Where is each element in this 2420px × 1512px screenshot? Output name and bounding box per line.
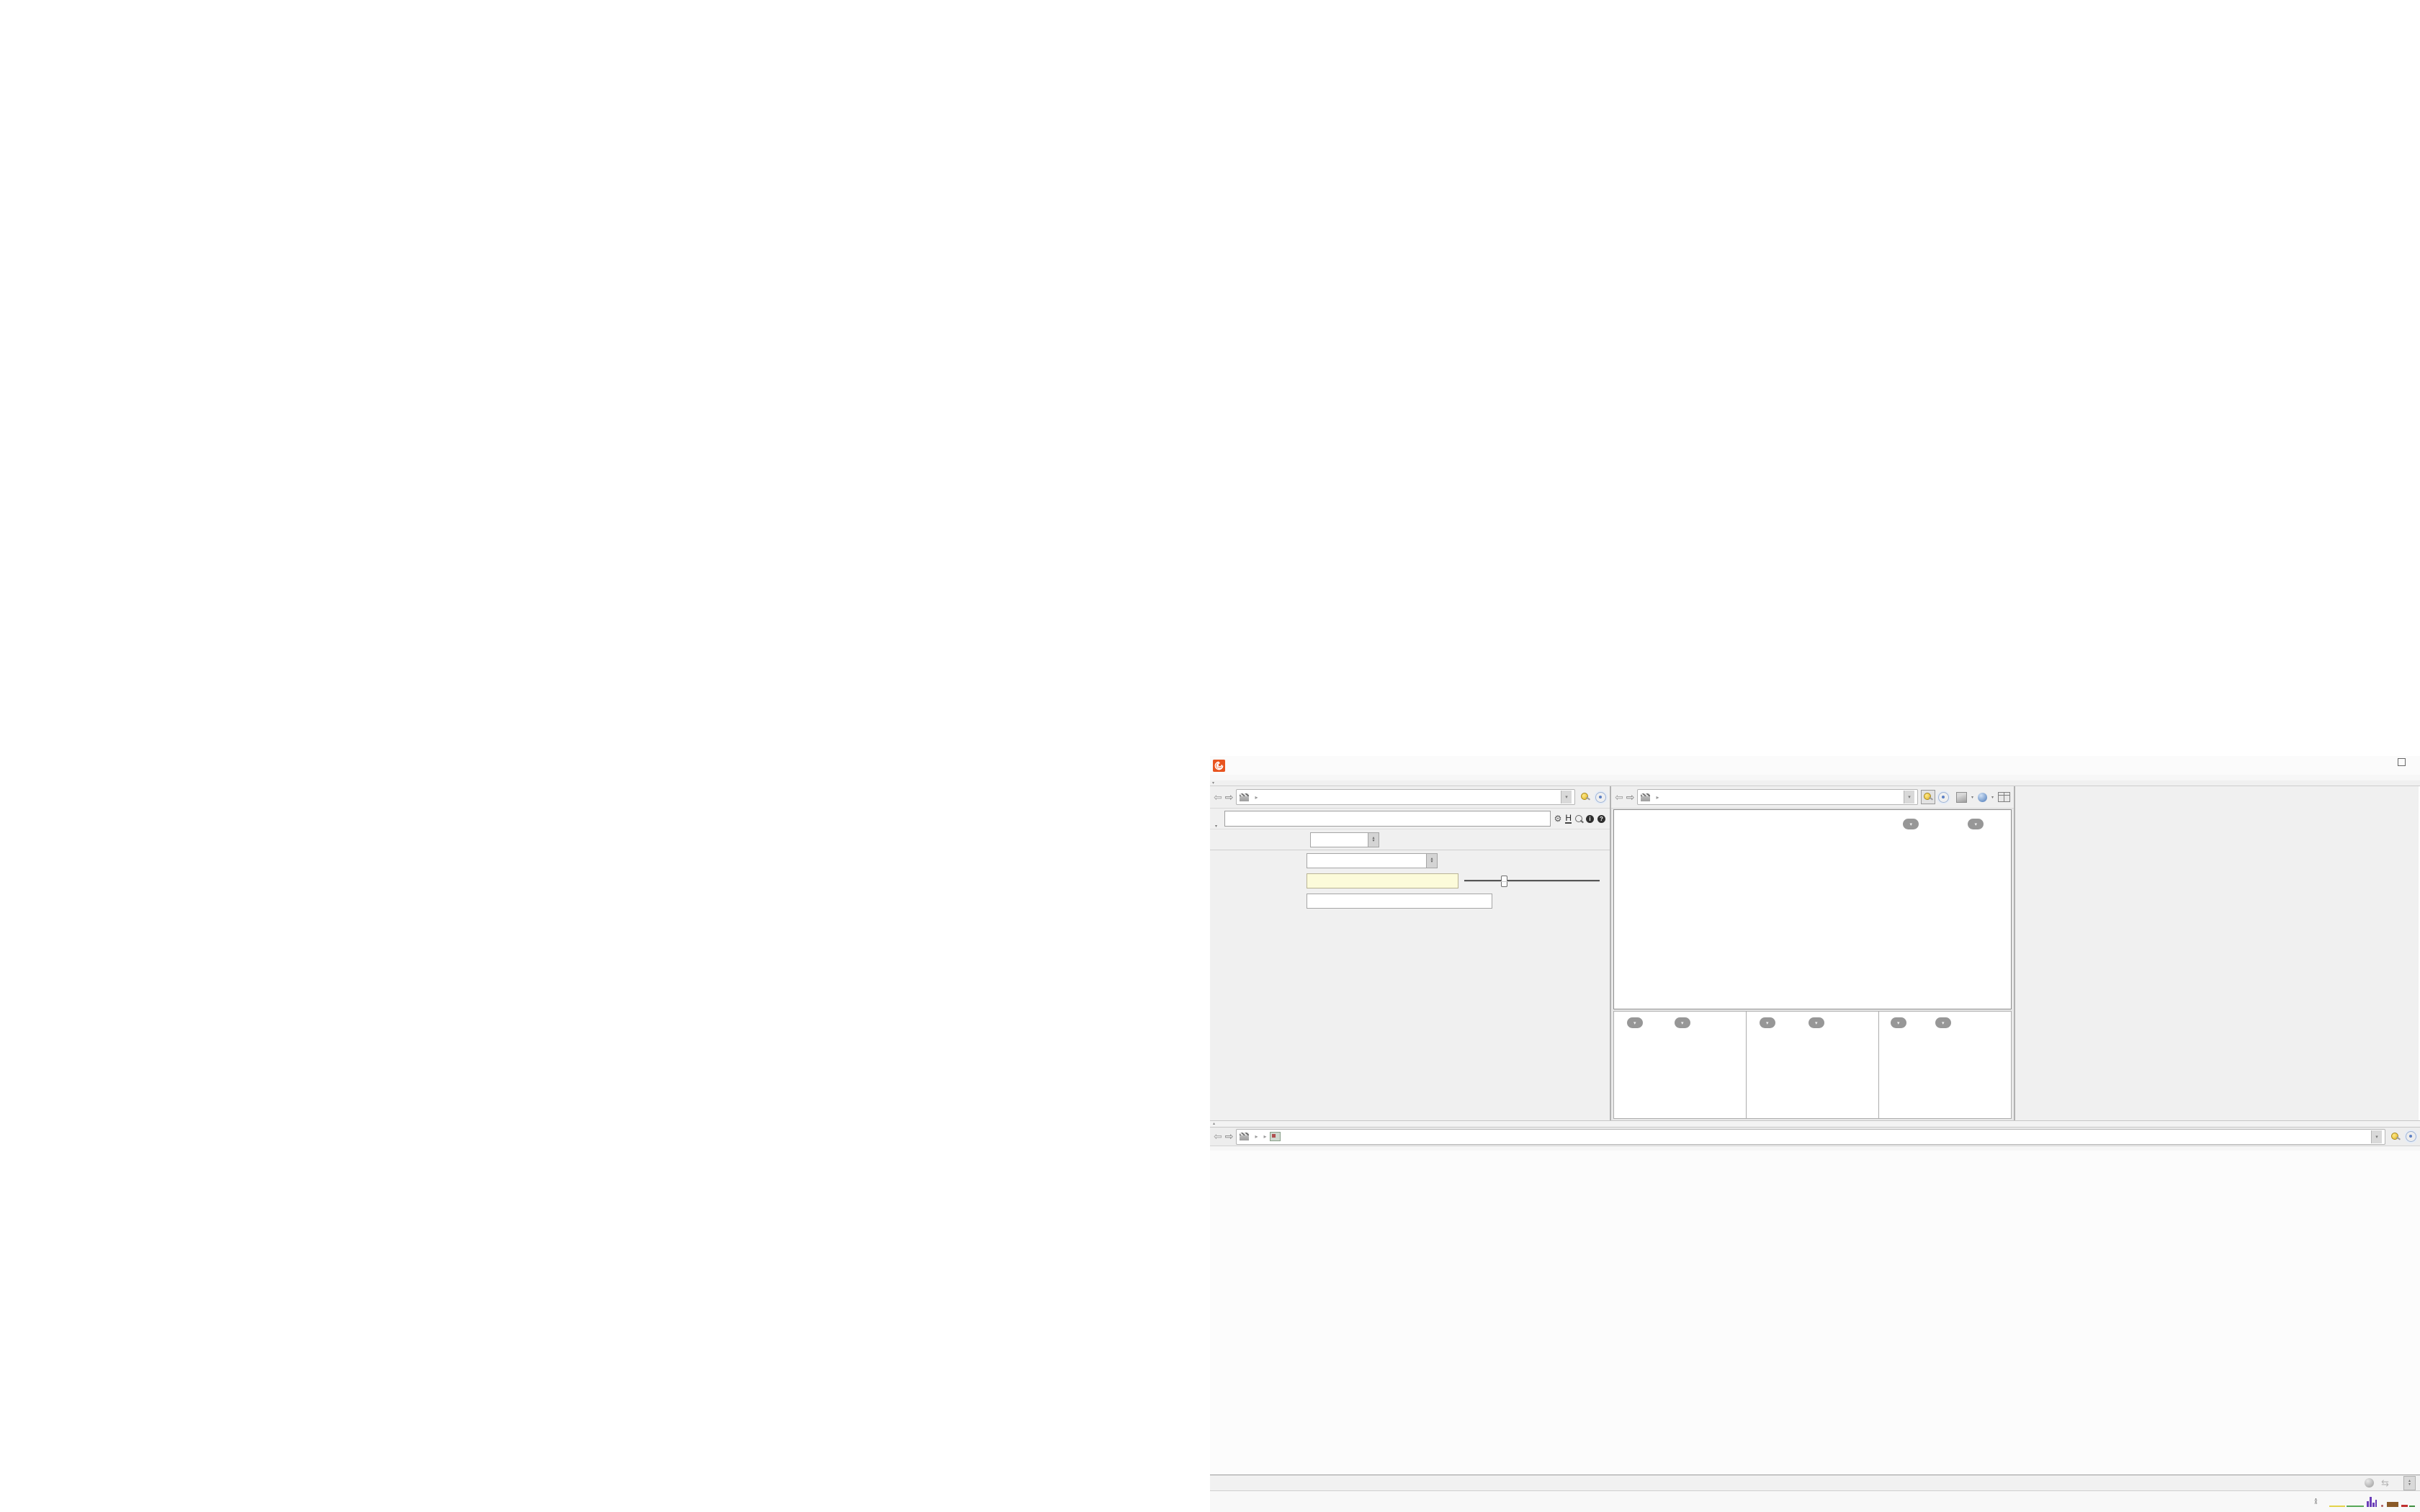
path-breadcrumb[interactable]: ▸ ▾ [1637, 789, 1918, 805]
highlight-button[interactable] [1921, 790, 1935, 804]
quad-viewports: ▾ ▾ ▾ ▾ ▾ ▾ [1613, 1011, 2012, 1119]
wireframe-mesh [1909, 1017, 1961, 1117]
forward-arrow-icon[interactable]: ⇨ [1225, 1130, 1234, 1143]
spinner-icon[interactable]: ▴▾ [1426, 854, 1437, 868]
back-arrow-icon[interactable]: ⇦ [1615, 791, 1623, 804]
help-icon[interactable]: ? [1597, 815, 1605, 823]
back-arrow-icon[interactable]: ⇦ [1214, 791, 1222, 804]
key-icon [1581, 793, 1588, 800]
quadview-toggle-icon[interactable] [1998, 792, 2010, 802]
houdini-logo-icon [1213, 760, 1225, 772]
key-icon [2391, 1133, 2398, 1140]
pin-pane-button[interactable] [1578, 790, 1592, 804]
screen: ▾ ⇦ ⇨ ▸ ▾ [0, 0, 2420, 1512]
houdini-help-icon[interactable]: H [1565, 814, 1572, 824]
recook-icon[interactable]: ⇆ [2381, 1477, 2389, 1489]
forward-arrow-icon[interactable]: ⇨ [1225, 791, 1234, 804]
chevron-up-icon[interactable]: ∧∧ [2314, 1499, 2318, 1505]
viewport-front-view[interactable]: ▾ ▾ [1747, 1011, 1879, 1119]
pane-menu-icon[interactable] [1595, 792, 1606, 803]
viewport-left-view[interactable]: ▾ ▾ [1879, 1011, 2012, 1119]
pane-header: ⇦ ⇨ ▸ ▾ [1210, 786, 1610, 809]
shading-mode-icon[interactable] [1956, 792, 1967, 803]
slider-handle[interactable] [1501, 876, 1507, 887]
view-pill-button[interactable]: ▾ [1760, 1017, 1775, 1028]
breadcrumb-dropdown-icon[interactable]: ▾ [2371, 1130, 2382, 1143]
info-icon[interactable]: i [1586, 815, 1594, 823]
wireframe-mesh [1634, 823, 1991, 999]
upper-pane-row: ⇦ ⇨ ▸ ▾ ▾ [1210, 786, 2420, 1120]
system-monitor-histogram [2329, 1494, 2416, 1510]
network-path-breadcrumb[interactable]: ▸ ▸ ▾ [1236, 1129, 2385, 1145]
spinner-icon[interactable]: ▴▾ [1368, 833, 1379, 847]
houdini-window: ▾ ⇦ ⇨ ▸ ▾ [1210, 756, 2420, 1512]
asset-name-select[interactable]: ▴▾ [1310, 832, 1379, 847]
network-graph[interactable] [1210, 1151, 2420, 1475]
obj-network-icon [1240, 793, 1249, 801]
node-name-field[interactable] [1224, 811, 1551, 827]
pane-menu-icon[interactable] [1938, 792, 1949, 803]
back-arrow-icon[interactable]: ⇦ [1214, 1130, 1222, 1143]
vop-network-icon [1270, 1132, 1281, 1141]
status-bar: ⇆ ▴▾ [1210, 1475, 2420, 1490]
gear-icon[interactable]: ⚙ [1554, 814, 1562, 824]
pane-header: ⇦ ⇨ ▸ ▾ ▾ ▾ [1611, 786, 2014, 809]
parameter-pane-left: ⇦ ⇨ ▸ ▾ ▾ [1210, 786, 1611, 1120]
constant-type-select[interactable]: ▴▾ [1307, 853, 1438, 868]
viewport-pane: ⇦ ⇨ ▸ ▾ ▾ ▾ [1611, 786, 2015, 1120]
pane-menu-icon[interactable] [2406, 1131, 2416, 1142]
pin-pane-button[interactable] [2388, 1130, 2403, 1144]
pane-splitter[interactable]: ▴ [1210, 1120, 2420, 1128]
network-editor-header: ⇦ ⇨ ▸ ▸ ▾ [1210, 1128, 2420, 1146]
display-options-icon[interactable] [1978, 793, 1987, 802]
parameter-pane-right [2015, 786, 2419, 1120]
obj-network-icon [1240, 1133, 1249, 1140]
window-titlebar [1210, 756, 2420, 775]
wireframe-mesh [1646, 1017, 1698, 1117]
path-breadcrumb[interactable]: ▸ ▾ [1236, 789, 1575, 805]
node-header: ▾ ⚙ H i ? [1210, 809, 1610, 829]
breadcrumb-dropdown-icon[interactable]: ▾ [1904, 791, 1914, 804]
parameter-body: ▾ ⚙ H i ? ▴▾ [1210, 809, 1610, 911]
view-pill-button[interactable]: ▾ [1627, 1017, 1643, 1028]
render-sphere-icon[interactable] [2365, 1478, 2374, 1488]
constant-name-field[interactable] [1307, 894, 1492, 909]
key-icon [1924, 793, 1931, 800]
breadcrumb-separator-icon: ▸ [1255, 794, 1258, 801]
constant-name-row [1210, 891, 1610, 911]
camera-pill-button[interactable]: ▾ [1809, 1017, 1824, 1028]
constant-type-row: ▴▾ [1210, 850, 1610, 870]
view-pill-button[interactable]: ▾ [1891, 1017, 1906, 1028]
cook-mode-spinner[interactable]: ▴▾ [2403, 1476, 2416, 1490]
forward-arrow-icon[interactable]: ⇨ [1626, 791, 1635, 804]
perspective-viewport[interactable]: ▾ ▾ [1613, 809, 2012, 1009]
float-default-field[interactable] [1307, 873, 1458, 888]
asset-name-row: ▴▾ [1210, 829, 1610, 850]
viewport-right-view[interactable]: ▾ ▾ [1613, 1011, 1747, 1119]
toolbar-strip-2: ▾ [1210, 780, 2420, 786]
float-default-slider[interactable] [1464, 876, 1600, 886]
maximize-button[interactable] [2398, 758, 2406, 766]
float-default-row [1210, 870, 1610, 891]
obj-network-icon [1641, 793, 1650, 801]
os-taskbar: ∧∧ [1210, 1490, 2420, 1512]
camera-pill-button[interactable]: ▾ [1935, 1017, 1951, 1028]
breadcrumb-dropdown-icon[interactable]: ▾ [1561, 791, 1572, 804]
camera-pill-button[interactable]: ▾ [1675, 1017, 1690, 1028]
search-icon[interactable] [1575, 815, 1582, 822]
node-wires [1210, 1151, 2420, 1475]
wireframe-mesh [1757, 1013, 1867, 1118]
